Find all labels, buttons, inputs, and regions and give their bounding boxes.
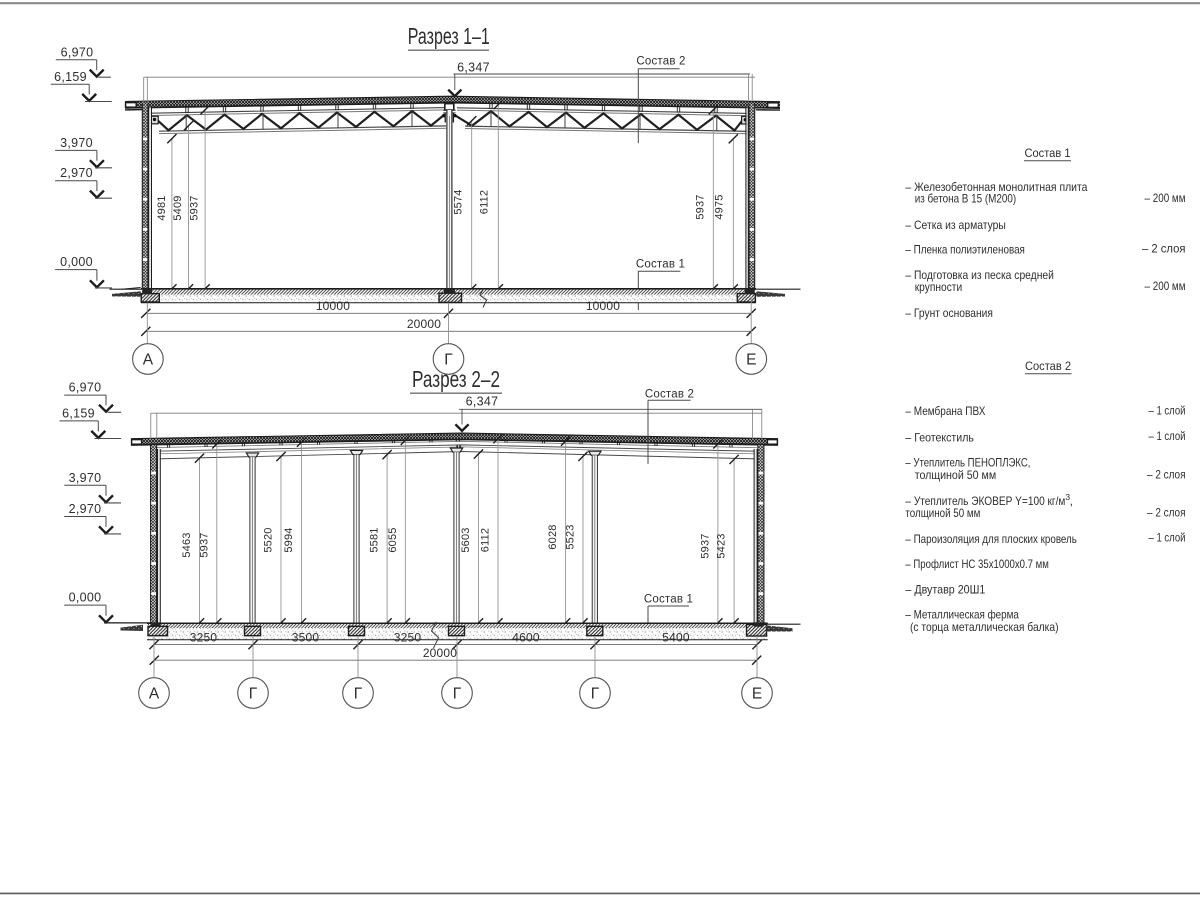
svg-text:– 2 слоя: – 2 слоя <box>1147 467 1186 481</box>
svg-text:– Профлист НС 35х1000х0.7 мм: – Профлист НС 35х1000х0.7 мм <box>905 557 1049 571</box>
svg-text:5994: 5994 <box>283 527 295 552</box>
svg-text:Г: Г <box>591 686 600 703</box>
svg-text:5937: 5937 <box>694 194 706 219</box>
svg-text:6,970: 6,970 <box>69 381 102 395</box>
svg-text:6,347: 6,347 <box>457 61 490 75</box>
svg-text:3,970: 3,970 <box>60 136 93 150</box>
svg-text:10000: 10000 <box>586 299 620 313</box>
svg-text:– Двутавр 20Ш1: – Двутавр 20Ш1 <box>905 583 985 597</box>
svg-text:А: А <box>149 686 160 703</box>
svg-text:Состав 1: Состав 1 <box>644 594 693 606</box>
svg-text:– 200 мм: – 200 мм <box>1145 279 1186 293</box>
svg-text:– Пленка полиэтиленовая: – Пленка полиэтиленовая <box>905 243 1025 257</box>
svg-text:4981: 4981 <box>156 195 168 220</box>
svg-text:5523: 5523 <box>565 524 577 549</box>
svg-text:20000: 20000 <box>423 646 457 660</box>
svg-text:– 1 слой: – 1 слой <box>1149 429 1186 443</box>
svg-text:Разрез 2–2: Разрез 2–2 <box>412 366 500 392</box>
svg-text:– 200 мм: – 200 мм <box>1145 191 1186 205</box>
svg-text:6,970: 6,970 <box>61 45 94 59</box>
svg-text:5400: 5400 <box>662 631 690 645</box>
svg-text:3250: 3250 <box>394 631 422 645</box>
svg-text:4975: 4975 <box>714 194 726 219</box>
svg-text:6055: 6055 <box>387 527 399 552</box>
svg-text:Г: Г <box>453 686 462 703</box>
svg-text:6112: 6112 <box>480 528 492 552</box>
svg-text:– 1 слой: – 1 слой <box>1149 530 1186 544</box>
svg-text:– 2 слоя: – 2 слоя <box>1142 242 1186 256</box>
svg-text:3500: 3500 <box>292 631 320 645</box>
svg-text:– Сетка из арматуры: – Сетка из арматуры <box>905 218 1006 232</box>
svg-text:0,000: 0,000 <box>60 255 93 269</box>
svg-text:3250: 3250 <box>190 631 218 645</box>
svg-text:Разрез 1–1: Разрез 1–1 <box>408 23 490 49</box>
svg-text:2,970: 2,970 <box>69 502 102 516</box>
svg-text:Состав 2: Состав 2 <box>645 388 694 400</box>
svg-text:20000: 20000 <box>407 317 441 331</box>
svg-text:– Геотекстиль: – Геотекстиль <box>905 430 974 444</box>
svg-text:4600: 4600 <box>512 631 540 645</box>
svg-text:Состав 1: Состав 1 <box>1025 146 1071 160</box>
svg-text:из бетона В 15 (М200): из бетона В 15 (М200) <box>915 192 1017 206</box>
svg-text:(с торца металлическая балка): (с торца металлическая балка) <box>910 620 1059 634</box>
svg-text:5409: 5409 <box>172 195 184 220</box>
svg-text:5520: 5520 <box>263 527 275 552</box>
svg-text:5463: 5463 <box>181 532 193 557</box>
svg-text:Состав 2: Состав 2 <box>1025 359 1071 373</box>
svg-text:Е: Е <box>752 686 762 703</box>
svg-text:6028: 6028 <box>547 524 559 549</box>
svg-text:10000: 10000 <box>316 299 350 313</box>
svg-text:0,000: 0,000 <box>69 591 102 605</box>
svg-text:5423: 5423 <box>716 533 728 558</box>
svg-text:– Грунт основания: – Грунт основания <box>905 306 993 320</box>
svg-text:,: , <box>1070 494 1073 508</box>
svg-text:– 2 слоя: – 2 слоя <box>1147 505 1186 519</box>
svg-text:2,970: 2,970 <box>60 166 93 180</box>
svg-text:5581: 5581 <box>369 527 381 552</box>
svg-text:5574: 5574 <box>453 189 465 214</box>
svg-text:толщиной 50 мм: толщиной 50 мм <box>905 506 980 520</box>
svg-text:Г: Г <box>249 686 258 703</box>
svg-text:6,159: 6,159 <box>62 406 95 420</box>
svg-text:– Пароизоляция для плоских кро: – Пароизоляция для плоских кровель <box>905 532 1077 546</box>
svg-text:– 1 слой: – 1 слой <box>1149 404 1186 418</box>
svg-text:6,159: 6,159 <box>54 70 87 84</box>
svg-text:5937: 5937 <box>188 195 200 220</box>
svg-text:Состав 1: Состав 1 <box>636 258 685 270</box>
svg-text:5937: 5937 <box>699 533 711 558</box>
svg-text:толщиной 50 мм: толщиной 50 мм <box>915 468 997 482</box>
svg-text:6,347: 6,347 <box>466 394 499 408</box>
svg-text:Е: Е <box>746 352 756 369</box>
svg-text:Г: Г <box>354 686 363 703</box>
svg-text:5937: 5937 <box>198 532 210 557</box>
svg-text:Состав 2: Состав 2 <box>636 55 685 67</box>
svg-text:– Мембрана ПВХ: – Мембрана ПВХ <box>905 404 985 418</box>
svg-text:3,970: 3,970 <box>69 471 102 485</box>
svg-text:5603: 5603 <box>460 527 472 552</box>
svg-text:крупности: крупности <box>915 280 963 294</box>
svg-text:А: А <box>143 352 154 369</box>
svg-text:6112: 6112 <box>478 190 490 214</box>
